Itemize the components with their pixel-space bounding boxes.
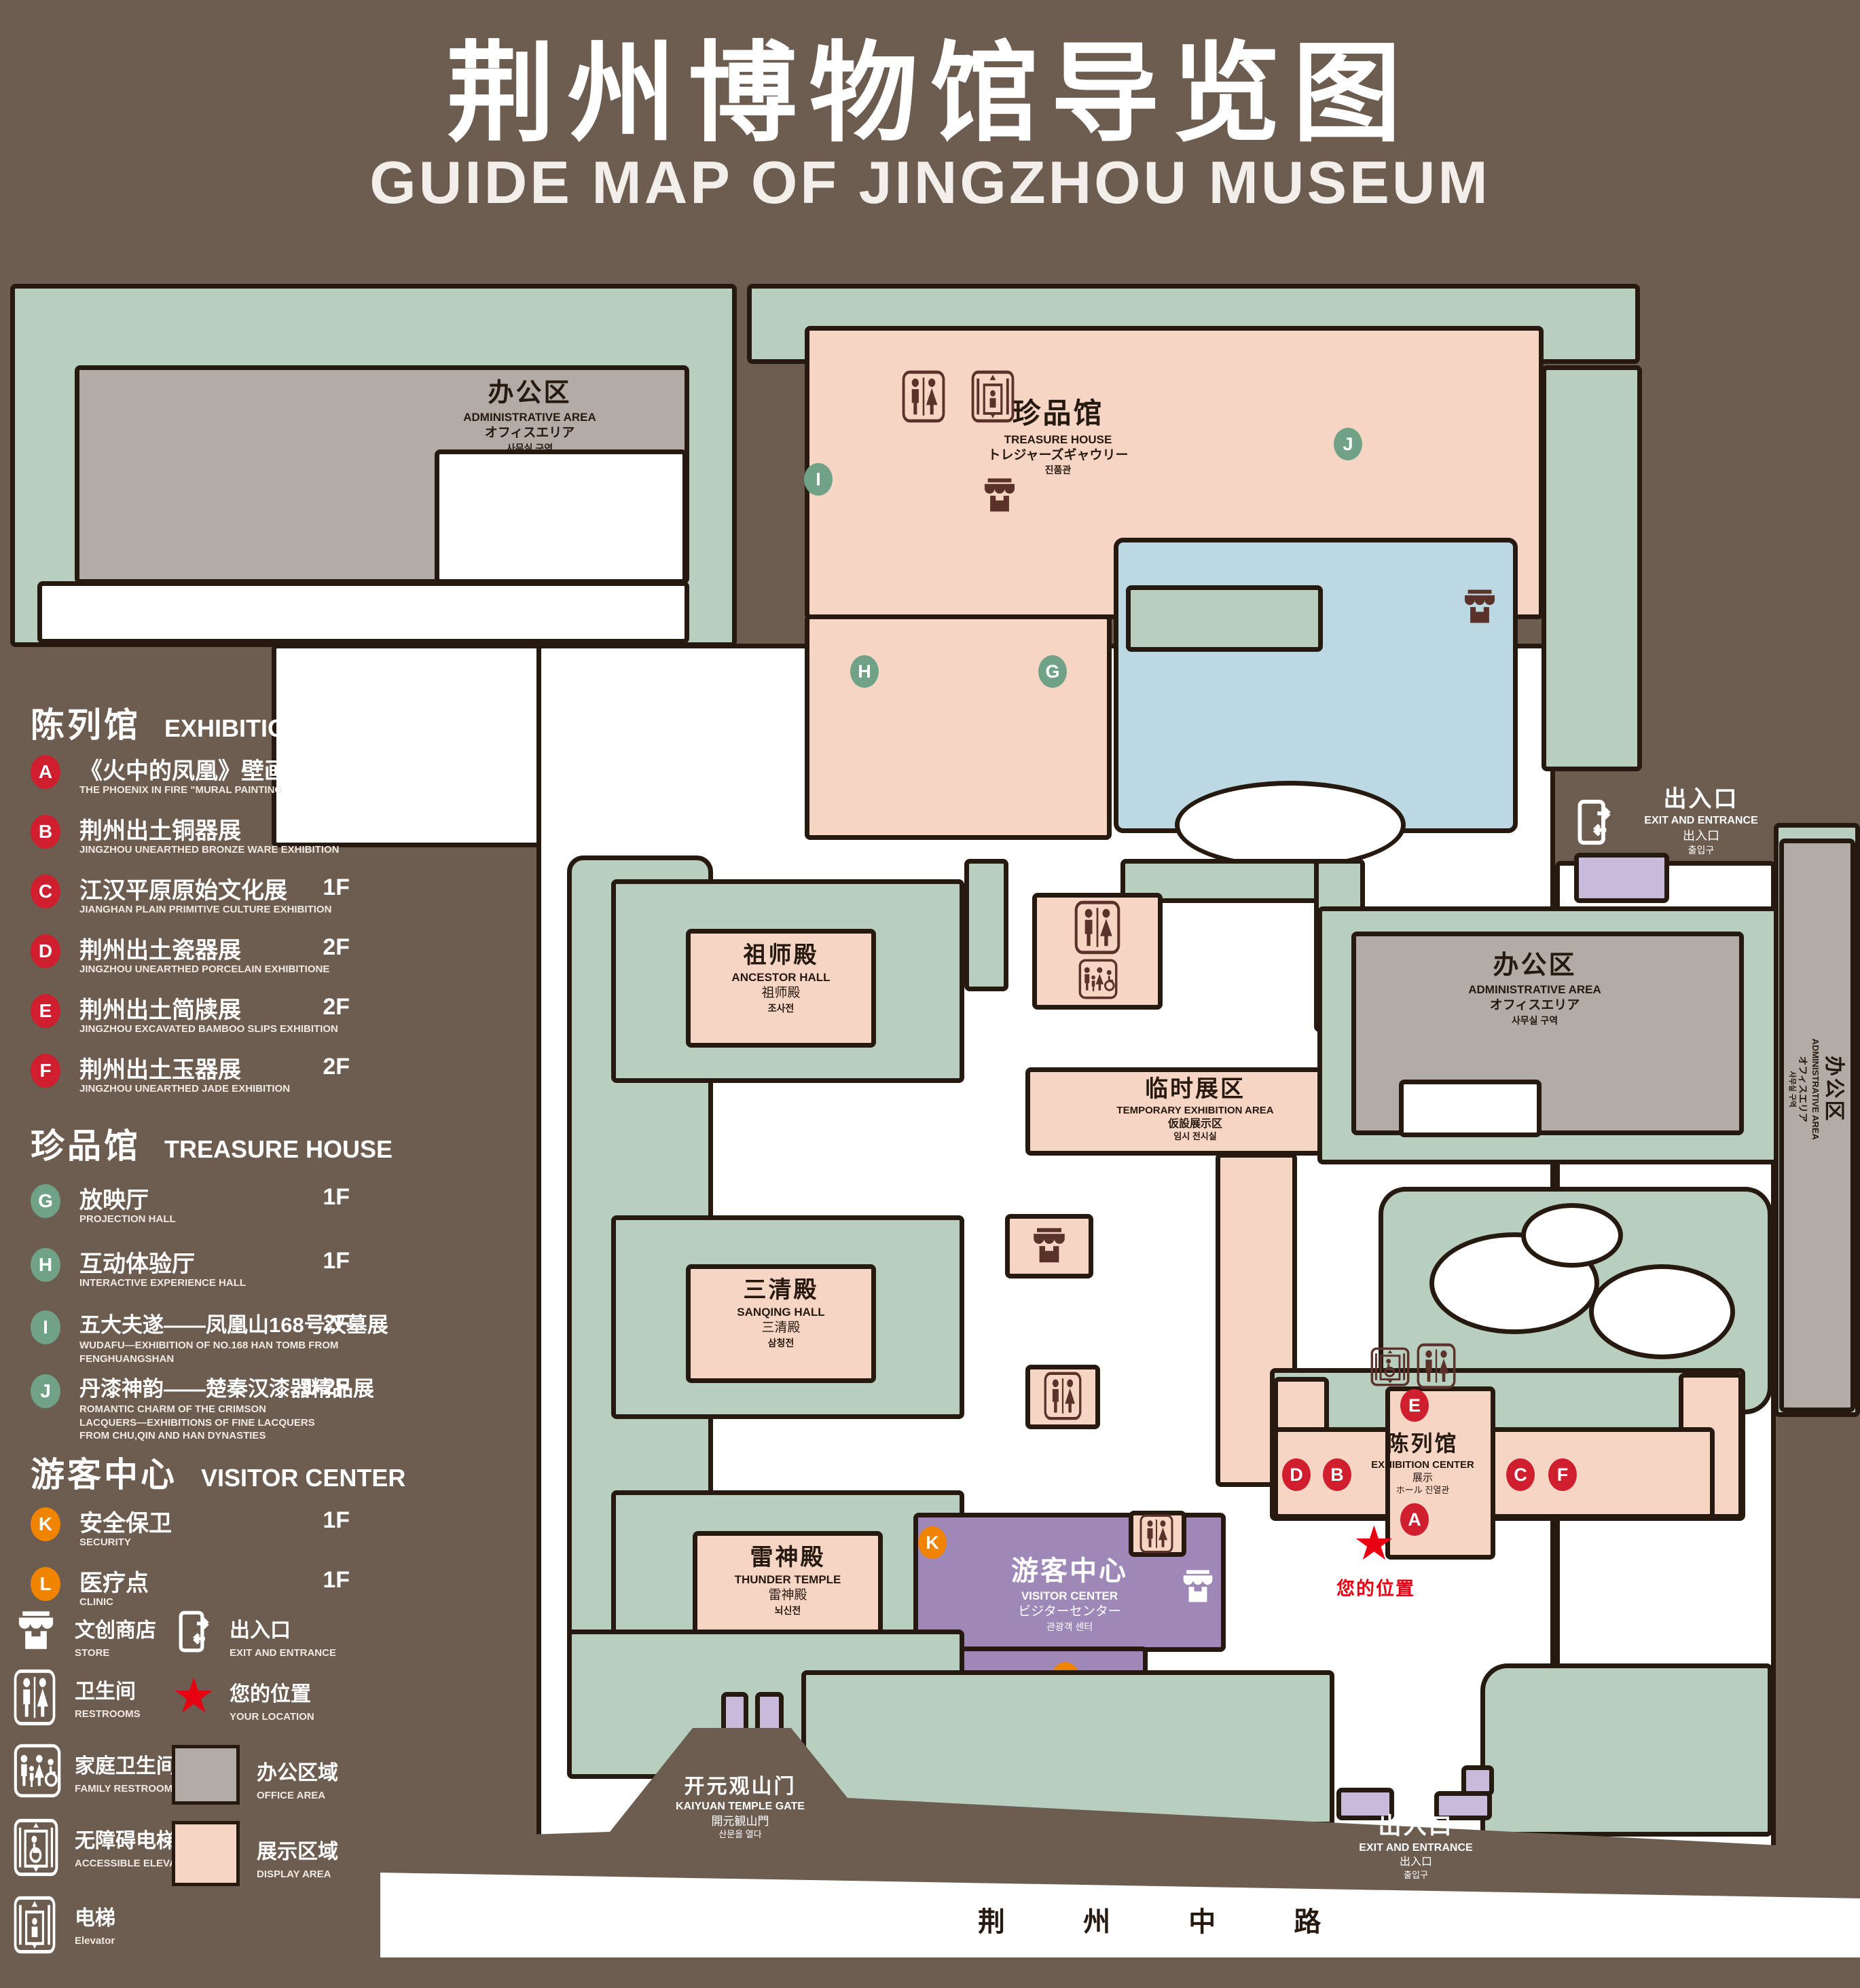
green-patch [964,859,1008,991]
legend-section-visitor-center: 游客中心VISITOR CENTER [31,1448,479,1496]
badge-B: B [31,815,60,849]
pond-green-islet [1126,585,1323,652]
page-subtitle: GUIDE MAP OF JINGZHOU MUSEUM [0,148,1860,217]
restrooms-icon [1139,1514,1173,1553]
store-icon [1029,1222,1070,1268]
store-icon [14,1608,58,1653]
elevator-icon [971,370,1015,423]
legend-symbol-elevator: 电梯 Elevator [14,1896,56,1977]
store-icon [980,474,1019,516]
legend-item-B: B 荆州出土铜器展 JINGZHOU UNEARTHED BRONZE WARE… [31,812,350,869]
admin-courtyard-top-left [435,449,687,584]
your-location-star: ★ [1353,1520,1396,1567]
badge-G: G [31,1184,60,1218]
marker-D: D [1282,1458,1311,1491]
treasure-house-left-wing [805,614,1112,840]
road-label: 荆 州 中 路 [978,1900,1356,1939]
accessible-elevator-icon [14,1818,58,1877]
sanqing-hall-label: 三清殿 SANQING HALL 三清殿 삼청전 [679,1275,883,1349]
garden-path [1521,1203,1623,1268]
legend-item-K: K 安全保卫 SECURITY 1F [31,1505,350,1562]
legend-section-treasure-house: 珍品馆TREASURE HOUSE [31,1119,479,1168]
legend-item-I: I 五大夫遂——凤凰山168号汉墓展 WUDAFU—EXHIBITION OF … [31,1308,350,1365]
legend-symbol-restrooms: 卫生间 RESTROOMS [14,1669,56,1750]
legend-symbol-your-location: ★ 您的位置 YOUR LOCATION [172,1672,216,1753]
legend-item-G: G 放映厅 PROJECTION HALL 1F [31,1181,350,1238]
legend-symbol-accessible-elevator: 无障碍电梯 ACCESSIBLE ELEVATOR [14,1818,58,1900]
badge-I: I [31,1310,60,1344]
exhibition-center-label: 陈列馆 EXHIBITION CENTER 展示 ホール 진열관 [1331,1430,1514,1496]
green-bottom-right [1480,1663,1772,1837]
badge-H: H [31,1248,60,1282]
green-column-right-top [1542,365,1642,771]
garden-path [1589,1264,1735,1359]
badge-E: E [31,994,60,1028]
restrooms-icon [1417,1343,1456,1389]
restrooms-icon [1044,1372,1082,1420]
marker-C: C [1506,1458,1535,1491]
restrooms-icon [902,370,945,423]
thunder-temple-label: 雷神殿 THUNDER TEMPLE 雷神殿 뇌신전 [686,1543,890,1617]
marker-K: K [918,1526,947,1559]
marker-G: G [1038,655,1067,688]
temporary-exhibition-label: 临时展区 TEMPORARY EXHIBITION AREA 仮設展示区 임시 … [1053,1074,1338,1143]
accessible-elevator-icon [1370,1346,1410,1388]
badge-A: A [31,755,60,789]
restrooms-icon [1074,900,1120,955]
exit-top-right-label: 出入口 EXIT AND ENTRANCE 出入口 출입구 [1623,784,1779,857]
badge-J: J [31,1374,60,1408]
kaiyuan-gate-label: 开元观山门 KAIYUAN TEMPLE GATE 開元観山門 산문을 열다 [638,1773,842,1841]
marker-A: A [1400,1503,1429,1536]
admin-strip-label: 办公区 ADMINISTRATIVE AREA オフィスエリア 사무실 구역 [1787,994,1847,1184]
your-location-label: 您的位置 [1336,1574,1415,1600]
marker-I: I [804,463,833,496]
admin-right-label: 办公区 ADMINISTRATIVE AREA オフィスエリア 사무실 구역 [1412,949,1657,1027]
badge-F: F [31,1054,60,1088]
legend-item-H: H 互动体验厅 INTERACTIVE EXPERIENCE HALL 1F [31,1245,350,1302]
badge-D: D [31,934,60,968]
store-icon [1179,1566,1217,1606]
marker-F: F [1548,1458,1577,1491]
location-star: ★ [172,1669,216,1723]
visitor-center-label: 游客中心 VISITOR CENTER ビジターセンター 관광객 센터 [947,1553,1192,1633]
admin-top-left-label: 办公区 ADMINISTRATIVE AREA オフィスエリア 사무실 구역 [394,377,665,454]
legend-section-exhibition-center: 陈列馆EXHIBITION CENTER [31,698,479,747]
marker-J: J [1334,428,1362,460]
legend-item-E: E 荆州出土简牍展 JINGZHOU EXCAVATED BAMBOO SLIP… [31,991,350,1048]
gate-building [1574,853,1669,903]
display-area-swatch [172,1821,240,1886]
badge-C: C [31,875,60,908]
family-restrooms-icon [14,1744,61,1798]
exit-bottom-label: 出入口 EXIT AND ENTRANCE 出入口 출입구 [1331,1811,1501,1881]
marker-H: H [850,655,879,688]
exit-icon [172,1608,217,1655]
store-icon [1460,585,1499,627]
marker-B: B [1323,1458,1351,1491]
pond-white-bank [1175,781,1406,869]
exit-icon [1570,796,1619,849]
family-restrooms-icon [1078,959,1118,999]
legend-item-D: D 荆州出土瓷器展 JINGZHOU UNEARTHED PORCELAIN E… [31,932,350,989]
restrooms-icon [14,1669,56,1726]
ancestor-hall-label: 祖师殿 ANCESTOR HALL 祖师殿 조사전 [679,940,883,1014]
badge-L: L [31,1567,60,1601]
legend-item-J: J 丹漆神韵——楚秦汉漆器精品展 ROMANTIC CHARM OF THE C… [31,1372,350,1453]
elevator-icon [14,1896,56,1954]
legend-item-C: C 江汉平原原始文化展 JIANGHAN PLAIN PRIMITIVE CUL… [31,872,350,929]
admin-yard-strip [37,581,689,644]
legend-item-F: F 荆州出土玉器展 JINGZHOU UNEARTHED JADE EXHIBI… [31,1051,350,1108]
legend-item-A: A 《火中的凤凰》壁画 THE PHOENIX IN FIRE "MURAL P… [31,752,350,809]
admin-right-courtyard [1399,1080,1542,1137]
marker-E: E [1400,1389,1429,1422]
guide-map-poster: { "title": {"cn": "荆州博物馆导览图", "en": "GUI… [0,0,1860,1988]
office-area-swatch [172,1745,240,1805]
badge-K: K [31,1507,60,1541]
page-title: 荆州博物馆导览图 [0,5,1860,163]
legend-symbol-family-restrooms: 家庭卫生间 FAMILY RESTROOMS [14,1744,61,1825]
